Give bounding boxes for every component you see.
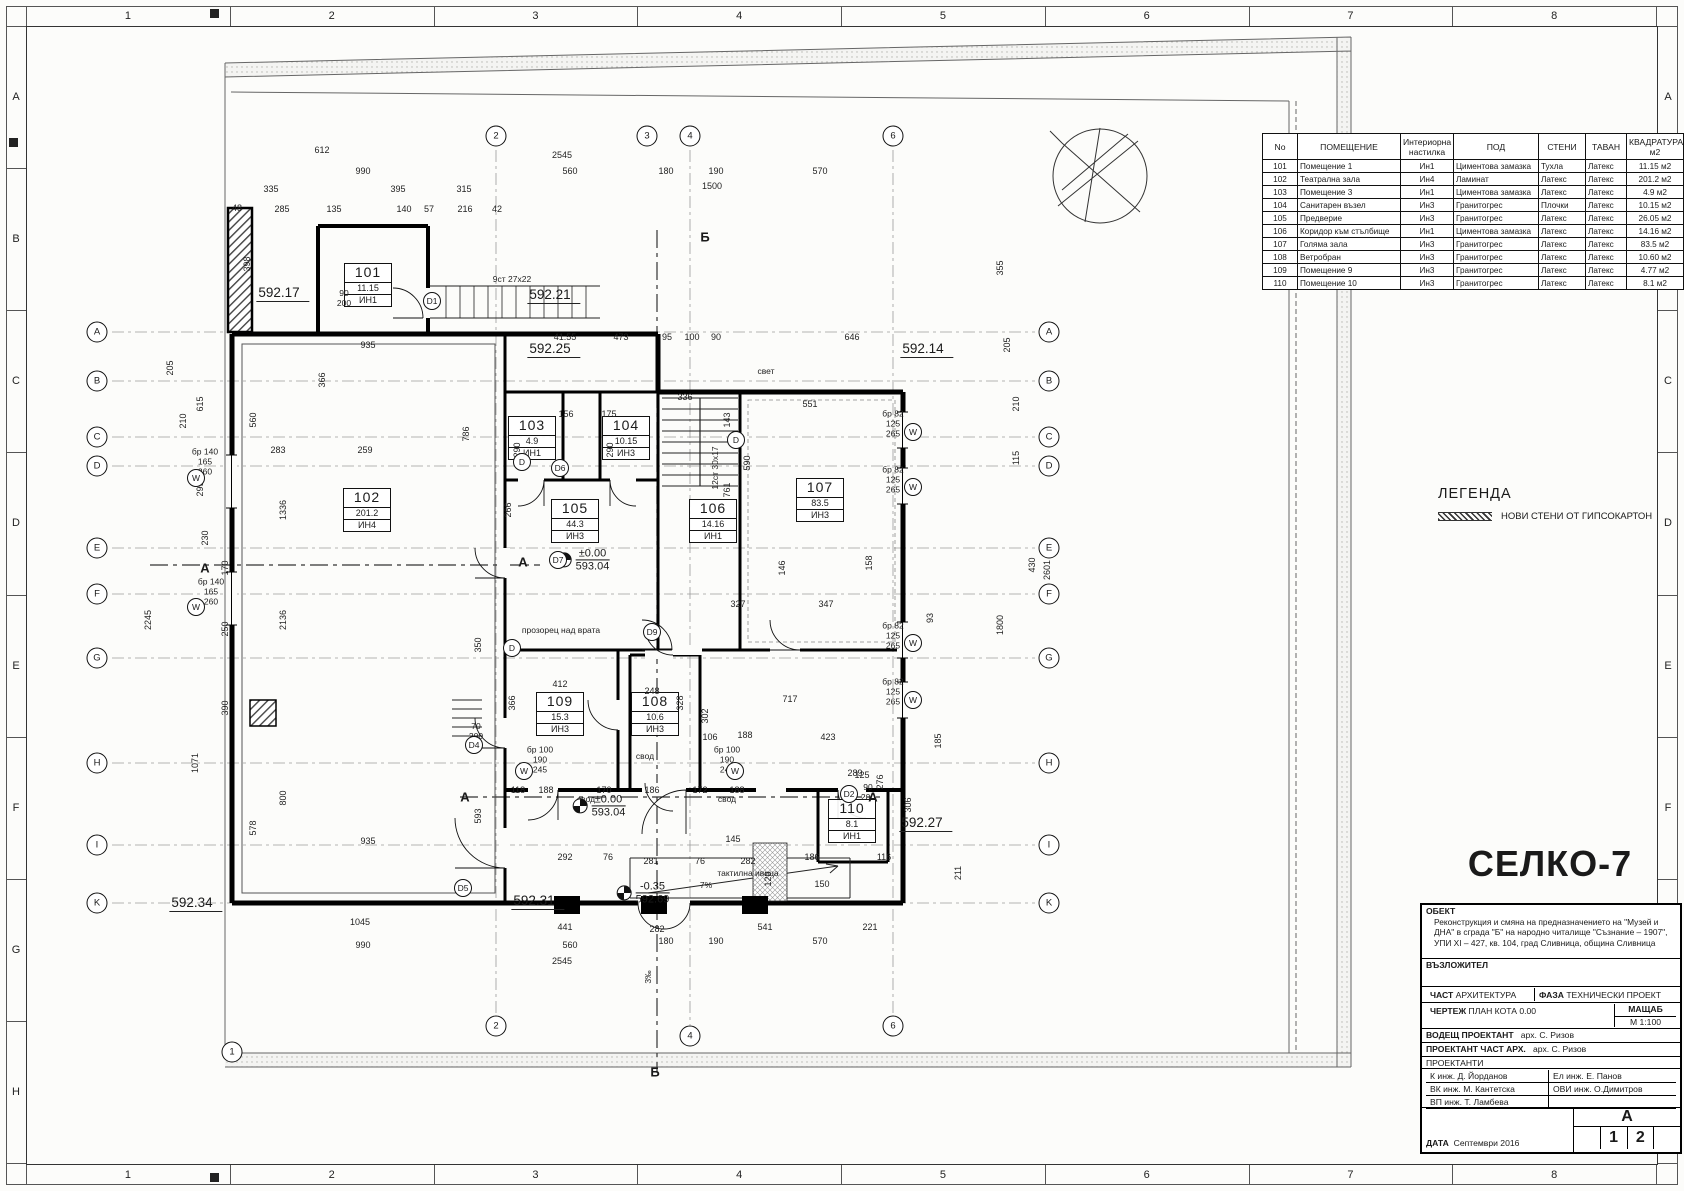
schedule-cell: 110 — [1263, 277, 1298, 290]
schedule-row: 101Помещение 1Ин1Циментова замазкаТухлаЛ… — [1263, 160, 1684, 173]
engineer-row: ВК инж. М. КантетскаОВИ инж. О.Димитров — [1426, 1083, 1676, 1096]
schedule-cell: Гранитогрес — [1454, 277, 1539, 290]
schedule-cell: Латекс — [1539, 186, 1586, 199]
scale-label: МАЩАБ — [1615, 1004, 1676, 1017]
sheet-number-cell: 2 — [1627, 1127, 1654, 1149]
engineer-name: ОВИ инж. О.Димитров — [1548, 1083, 1676, 1095]
scale-value: М 1:100 — [1615, 1017, 1676, 1029]
sheet-number-cell — [1653, 1127, 1680, 1149]
phase-label: ФАЗА — [1539, 990, 1564, 1000]
schedule-col-header: Интериорна настилка — [1401, 134, 1454, 160]
schedule-cell: Латекс — [1586, 212, 1627, 225]
schedule-cell: Латекс — [1586, 277, 1627, 290]
schedule-cell: 107 — [1263, 238, 1298, 251]
schedule-col-header: КВАДРАТУРА м2 — [1627, 134, 1684, 160]
schedule-cell: 201.2 м2 — [1627, 173, 1684, 186]
schedule-cell: Латекс — [1586, 199, 1627, 212]
date-label: ДАТА — [1426, 1138, 1449, 1148]
schedule-cell: 109 — [1263, 264, 1298, 277]
schedule-cell: Ин3 — [1401, 212, 1454, 225]
schedule-cell: Латекс — [1586, 251, 1627, 264]
sheet-number-cell — [1574, 1127, 1600, 1149]
schedule-cell: 4.9 м2 — [1627, 186, 1684, 199]
sheet-letter: А — [1574, 1108, 1680, 1127]
schedule-cell: Латекс — [1586, 173, 1627, 186]
schedule-cell: Ветробран — [1298, 251, 1401, 264]
room-schedule-table: NoПОМЕЩЕНИЕИнтериорна настилкаПОДСТЕНИТА… — [1262, 133, 1684, 290]
client-label: ВЪЗЛОЖИТЕЛ — [1426, 960, 1488, 970]
sheet-numbers: 12 — [1574, 1127, 1680, 1149]
schedule-cell: Латекс — [1586, 238, 1627, 251]
schedule-cell: Ламинат — [1454, 173, 1539, 186]
schedule-row: 106Коридор към стълбищеИн1Циментова зама… — [1263, 225, 1684, 238]
schedule-cell: 102 — [1263, 173, 1298, 186]
sheet-number-cell: 1 — [1600, 1127, 1627, 1149]
schedule-cell: Ин3 — [1401, 199, 1454, 212]
schedule-cell: Латекс — [1539, 238, 1586, 251]
schedule-cell: Коридор към стълбище — [1298, 225, 1401, 238]
building-walls — [228, 208, 903, 903]
schedule-cell: Плочки — [1539, 199, 1586, 212]
stairs — [430, 286, 850, 901]
schedule-cell: Латекс — [1539, 173, 1586, 186]
schedule-row: 109Помещение 9Ин3ГранитогресЛатексЛатекс… — [1263, 264, 1684, 277]
schedule-col-header: ПОД — [1454, 134, 1539, 160]
schedule-cell: Латекс — [1539, 225, 1586, 238]
engineer-name: Ел инж. Е. Панов — [1548, 1070, 1676, 1082]
schedule-cell: 104 — [1263, 199, 1298, 212]
lead-designer-label: ВОДЕЩ ПРОЕКТАНТ — [1426, 1030, 1514, 1040]
part-value: АРХИТЕКТУРА — [1456, 990, 1517, 1000]
engineer-name: ВК инж. М. Кантетска — [1426, 1083, 1548, 1095]
schedule-cell: 8.1 м2 — [1627, 277, 1684, 290]
schedule-cell: Латекс — [1586, 160, 1627, 173]
engineer-name: ВП инж. Т. Ламбева — [1426, 1096, 1548, 1108]
arch-designer-label: ПРОЕКТАНТ ЧАСТ АРХ. — [1426, 1044, 1526, 1054]
schedule-cell: Ин1 — [1401, 160, 1454, 173]
schedule-cell: 106 — [1263, 225, 1298, 238]
schedule-row: 102Театрална залаИн4ЛаминатЛатексЛатекс2… — [1263, 173, 1684, 186]
schedule-cell: 105 — [1263, 212, 1298, 225]
schedule-cell: Гранитогрес — [1454, 212, 1539, 225]
schedule-cell: 83.5 м2 — [1627, 238, 1684, 251]
schedule-cell: Гранитогрес — [1454, 199, 1539, 212]
company-logo: СЕЛКО-7 — [1420, 843, 1680, 885]
schedule-cell: Латекс — [1586, 225, 1627, 238]
schedule-cell: 108 — [1263, 251, 1298, 264]
schedule-cell: 11.15 м2 — [1627, 160, 1684, 173]
new-wall-hatch-icon — [1438, 512, 1492, 521]
schedule-cell: Циментова замазка — [1454, 160, 1539, 173]
schedule-row: 107Голяма залаИн3ГранитогресЛатексЛатекс… — [1263, 238, 1684, 251]
schedule-cell: Латекс — [1586, 186, 1627, 199]
schedule-row: 104Санитарен възелИн3ГранитогресПлочкиЛа… — [1263, 199, 1684, 212]
schedule-cell: 103 — [1263, 186, 1298, 199]
schedule-cell: Латекс — [1539, 277, 1586, 290]
schedule-cell: 10.60 м2 — [1627, 251, 1684, 264]
designers-label: ПРОЕКТАНТИ — [1426, 1058, 1483, 1068]
schedule-cell: Голяма зала — [1298, 238, 1401, 251]
schedule-col-header: ТАВАН — [1586, 134, 1627, 160]
schedule-cell: Санитарен възел — [1298, 199, 1401, 212]
drawing-label: ЧЕРТЕЖ — [1430, 1006, 1466, 1016]
object-description: Реконструкция и смяна на предназначениет… — [1426, 917, 1676, 949]
schedule-cell: Ин3 — [1401, 238, 1454, 251]
north-arrow — [1050, 128, 1147, 223]
schedule-cell: Ин3 — [1401, 277, 1454, 290]
sheet-number-box: А 12 — [1573, 1108, 1680, 1152]
schedule-cell: 4.77 м2 — [1627, 264, 1684, 277]
schedule-row: 110Помещение 10Ин3ГранитогресЛатексЛатек… — [1263, 277, 1684, 290]
schedule-cell: Предверие — [1298, 212, 1401, 225]
legend-title: ЛЕГЕНДА — [1438, 486, 1678, 502]
window-symbols — [226, 412, 908, 718]
schedule-cell: Латекс — [1586, 264, 1627, 277]
drawing-sheet: 1122334455667788AABBCCDDEEFFGGHH — [0, 0, 1684, 1191]
schedule-col-header: No — [1263, 134, 1298, 160]
schedule-cell: Ин1 — [1401, 186, 1454, 199]
drawing-title: ПЛАН КОТА 0.00 — [1469, 1006, 1537, 1016]
schedule-cell: Циментова замазка — [1454, 186, 1539, 199]
legend-item-label: НОВИ СТЕНИ ОТ ГИПСОКАРТОН — [1501, 511, 1652, 522]
object-label: ОБЕКТ — [1426, 906, 1455, 916]
schedule-cell: 10.15 м2 — [1627, 199, 1684, 212]
schedule-cell: Театрална зала — [1298, 173, 1401, 186]
engineer-name — [1548, 1096, 1676, 1108]
schedule-cell: Гранитогрес — [1454, 238, 1539, 251]
schedule-cell: Помещение 9 — [1298, 264, 1401, 277]
engineers-list: К инж. Д. ЙордановЕл инж. Е. ПановВК инж… — [1422, 1069, 1680, 1108]
engineer-name: К инж. Д. Йорданов — [1426, 1070, 1548, 1082]
arch-designer-name: арх. С. Ризов — [1533, 1044, 1586, 1054]
schedule-cell: Ин4 — [1401, 173, 1454, 186]
part-label: ЧАСТ — [1430, 990, 1453, 1000]
legend: ЛЕГЕНДА НОВИ СТЕНИ ОТ ГИПСОКАРТОН — [1438, 486, 1678, 522]
schedule-row: 103Помещение 3Ин1Циментова замазкаЛатекс… — [1263, 186, 1684, 199]
date-value: Септември 2016 — [1454, 1138, 1520, 1148]
site-boundary — [225, 37, 1351, 1067]
schedule-cell: Ин3 — [1401, 251, 1454, 264]
schedule-cell: 101 — [1263, 160, 1298, 173]
schedule-cell: Ин3 — [1401, 264, 1454, 277]
schedule-cell: 14.16 м2 — [1627, 225, 1684, 238]
schedule-cell: Тухла — [1539, 160, 1586, 173]
phase-value: ТЕХНИЧЕСКИ ПРОЕКТ — [1566, 990, 1661, 1000]
schedule-row: 108ВетробранИн3ГранитогресЛатексЛатекс10… — [1263, 251, 1684, 264]
schedule-cell: Гранитогрес — [1454, 251, 1539, 264]
schedule-col-header: ПОМЕЩЕНИЕ — [1298, 134, 1401, 160]
schedule-cell: Циментова замазка — [1454, 225, 1539, 238]
schedule-cell: Латекс — [1539, 251, 1586, 264]
schedule-header: NoПОМЕЩЕНИЕИнтериорна настилкаПОДСТЕНИТА… — [1263, 134, 1684, 160]
title-block: ОБЕКТ Реконструкция и смяна на предназна… — [1420, 903, 1682, 1154]
engineer-row: К инж. Д. ЙордановЕл инж. Е. Панов — [1426, 1070, 1676, 1083]
schedule-cell: Помещение 10 — [1298, 277, 1401, 290]
schedule-body: 101Помещение 1Ин1Циментова замазкаТухлаЛ… — [1263, 160, 1684, 290]
schedule-cell: Помещение 3 — [1298, 186, 1401, 199]
schedule-cell: Латекс — [1539, 212, 1586, 225]
schedule-cell: Латекс — [1539, 264, 1586, 277]
schedule-col-header: СТЕНИ — [1539, 134, 1586, 160]
lead-designer-name: арх. С. Ризов — [1521, 1030, 1574, 1040]
schedule-cell: Ин1 — [1401, 225, 1454, 238]
schedule-cell: Гранитогрес — [1454, 264, 1539, 277]
door-arcs — [393, 288, 866, 929]
schedule-cell: 26.05 м2 — [1627, 212, 1684, 225]
schedule-row: 105ПредвериеИн3ГранитогресЛатексЛатекс26… — [1263, 212, 1684, 225]
schedule-cell: Помещение 1 — [1298, 160, 1401, 173]
